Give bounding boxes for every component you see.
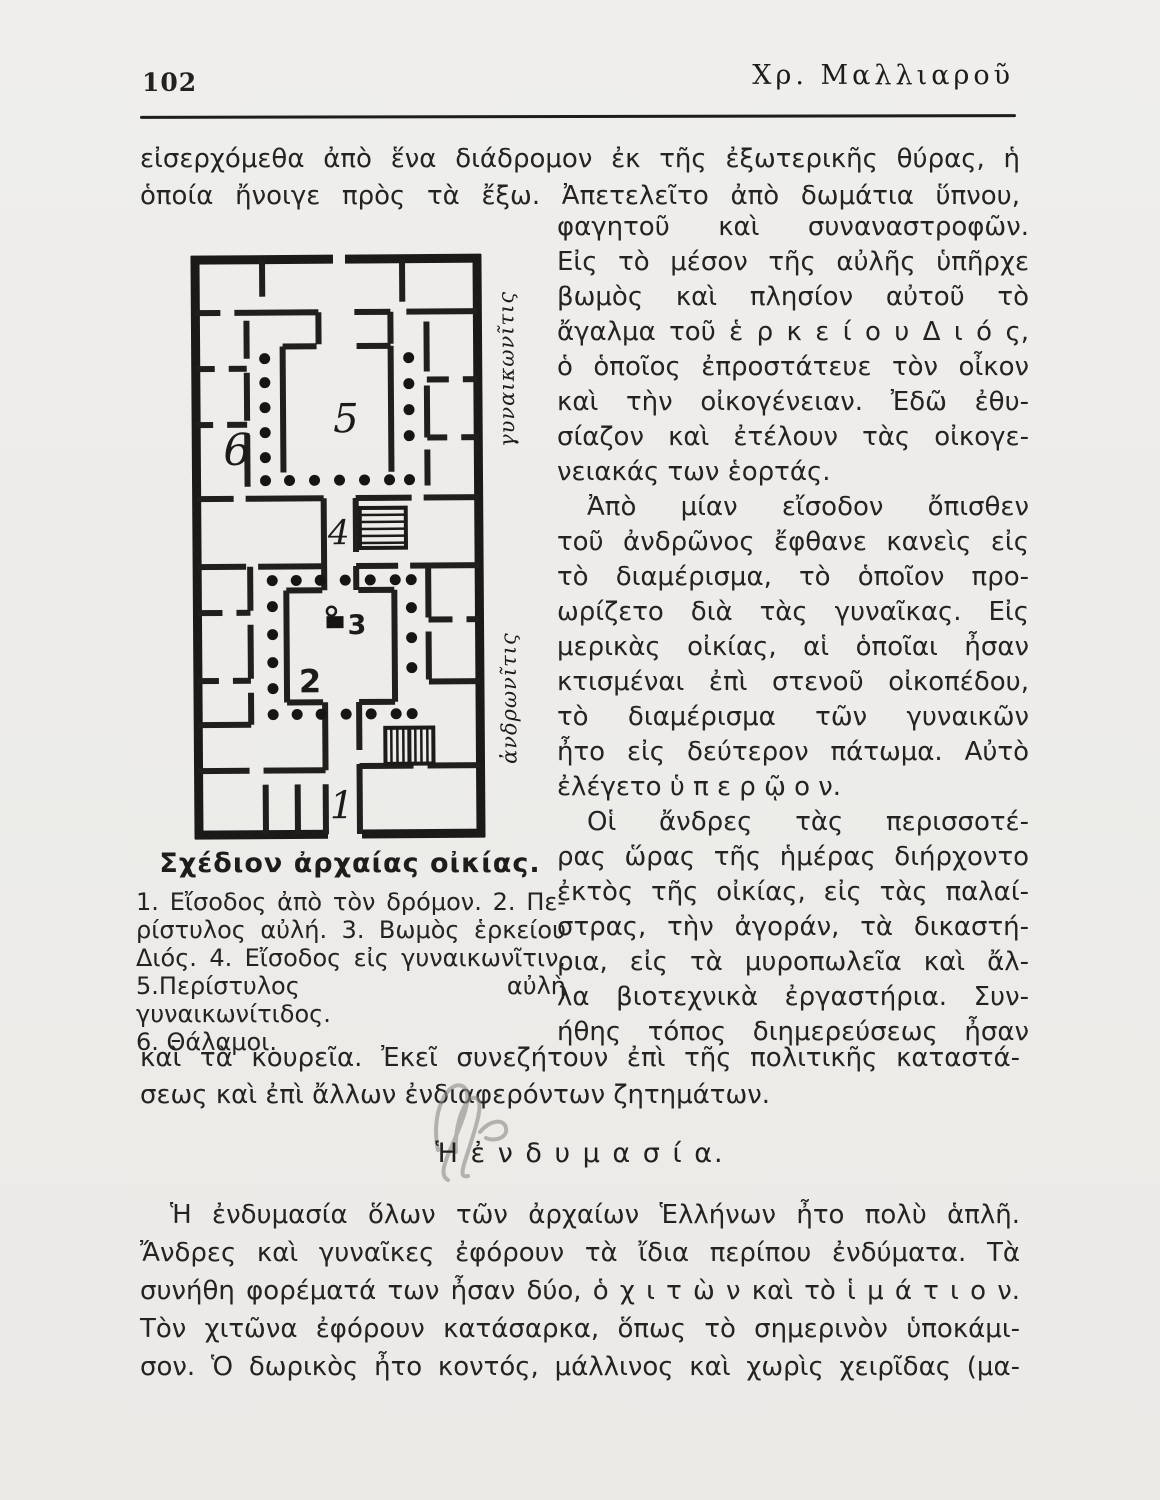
text-line: τὸ διαμέρισμα τῶν γυναικῶν	[557, 700, 1029, 735]
text-line: ρια, εἰς τὰ μυροπωλεῖα καὶ ἄλ-	[557, 945, 1029, 980]
text-line: φαγητοῦ καὶ συναναστροφῶν.	[557, 210, 1029, 245]
text-line: Τὸν χιτῶνα ἐφόρουν κατάσαρκα, ὅπως τὸ ση…	[140, 1310, 1020, 1348]
text-line: Ἡ ἐνδυμασία ὅλων τῶν ἀρχαίων Ἑλλήνων ἦτο…	[140, 1196, 1020, 1234]
figure-legend: 1. Εἴσοδος ἀπὸ τὸν δρόμον. 2. Πε-ρίστυλο…	[136, 888, 566, 1056]
text-line: καὶ τὰ κουρεῖα. Ἐκεῖ συνεζήτουν ἐπὶ τῆς …	[140, 1040, 1020, 1077]
text-line: Ἀπὸ μίαν εἴσοδον ὄπισθεν	[557, 490, 1029, 525]
text-line: ἦτο εἰς δεύτερον πάτωμα. Αὐτὸ	[557, 735, 1029, 770]
text-line: τοῦ ἀνδρῶνος ἔφθανε κανεὶς εἰς	[557, 525, 1029, 560]
header-rule	[140, 114, 1016, 119]
text-line: τὸ διαμέρισμα, τὸ ὁποῖον προ-	[557, 560, 1029, 595]
text-line: Οἱ ἄνδρες τὰς περισσοτέ-	[557, 805, 1029, 840]
text-line: λα βιοτεχνικὰ ἐργαστήρια. Συν-	[557, 980, 1029, 1015]
text-line: Ἄνδρες καὶ γυναῖκες ἐφόρουν τὰ ἴδια περί…	[140, 1234, 1020, 1272]
text-line: στρας, τὴν ἀγοράν, τὰ δικαστή-	[557, 910, 1029, 945]
clothing-paragraph: Ἡ ἐνδυμασία ὅλων τῶν ἀρχαίων Ἑλλήνων ἦτο…	[140, 1196, 1020, 1386]
intro-paragraph: εἰσερχόμεθα ἀπὸ ἕνα διάδρομον ἐκ τῆς ἐξω…	[140, 141, 1020, 215]
figure-caption: Σχέδιον ἀρχαίας οἰκίας.	[140, 848, 560, 879]
text-line: καὶ τὴν οἰκογένειαν. Ἐδῶ ἐθυ-	[557, 385, 1029, 420]
andronitis-label: ἀνδρωνῖτις	[497, 632, 522, 764]
text-line: ἐκτὸς τῆς οἰκίας, εἰς τὰς παλαί-	[557, 875, 1029, 910]
text-line: νειακάς των ἑορτάς.	[557, 455, 1029, 490]
section-heading: Ἡ ἐ ν δ υ μ α σ ί α.	[140, 1138, 1020, 1169]
text-line: Διός. 4. Εἴσοδος εἰς γυναικωνῖτιν.	[136, 944, 566, 972]
outer-wall-right	[477, 254, 481, 837]
altar-icon	[326, 607, 343, 629]
text-line: βωμὸς καὶ πλησίον αὐτοῦ τὸ	[557, 280, 1029, 315]
after-figure-paragraph: καὶ τὰ κουρεῖα. Ἐκεῖ συνεζήτουν ἐπὶ τῆς …	[140, 1040, 1020, 1114]
text-line: ὁ ὁποῖος ἐπροστάτευε τὸν οἶκον	[557, 350, 1029, 385]
room-number-4: 4	[327, 513, 350, 553]
text-line: ωρίζετο διὰ τὰς γυναῖκας. Εἰς	[557, 595, 1029, 630]
column-paragraph-mens-day: Οἱ ἄνδρες τὰς περισσοτέ-ρας ὥρας τῆς ἡμέ…	[557, 805, 1029, 1050]
scanned-book-page: 102 Χρ. Μαλλιαροῦ εἰσερχόμεθα ἀπὸ ἕνα δι…	[0, 0, 1160, 1500]
text-line: σον. Ὁ δωρικὸς ἦτο κοντός, μάλλινος καὶ …	[140, 1348, 1020, 1386]
text-line: ρίστυλος αὐλή. 3. Βωμὸς ἑρκείου	[136, 916, 566, 944]
floor-plan-drawing: 5 6 4 2 3 1 γυναικωνῖτις ἀνδρωνῖτις	[186, 249, 535, 846]
room-number-6: 6	[223, 425, 251, 476]
text-line: ρας ὥρας τῆς ἡμέρας διήρχοντο	[557, 840, 1029, 875]
room-number-1: 1	[330, 783, 354, 827]
pencil-scribble	[410, 1072, 560, 1187]
text-line: εἰσερχόμεθα ἀπὸ ἕνα διάδρομον ἐκ τῆς ἐξω…	[140, 141, 1020, 178]
outer-wall-left	[195, 256, 199, 839]
page-number: 102	[142, 68, 197, 97]
house-floor-plan-figure: 5 6 4 2 3 1 γυναικωνῖτις ἀνδρωνῖτις	[186, 249, 535, 846]
text-line: 1. Εἴσοδος ἀπὸ τὸν δρόμον. 2. Πε-	[136, 888, 566, 916]
text-line: σεως καὶ ἐπὶ ἄλλων ἐνδιαφερόντων ζητημάτ…	[140, 1077, 1020, 1114]
stairs-upper-icon	[360, 508, 406, 548]
outer-wall-top	[191, 258, 481, 260]
room-number-5: 5	[333, 396, 359, 442]
text-line: Εἰς τὸ μέσον τῆς αὐλῆς ὑπῆρχε	[557, 245, 1029, 280]
text-line: κτισμέναι ἐπὶ στενοῦ οἰκοπέδου,	[557, 665, 1029, 700]
text-line: ἐλέγετο ὑ π ε ρ ῷ ο ν.	[557, 770, 1029, 805]
text-line: σίαζον καὶ ἐτέλουν τὰς οἰκογε-	[557, 420, 1029, 455]
column-paragraph-altar: Εἰς τὸ μέσον τῆς αὐλῆς ὑπῆρχεβωμὸς καὶ π…	[557, 245, 1029, 490]
stairs-lower-icon	[385, 727, 433, 763]
room-number-2: 2	[299, 662, 322, 700]
column-paragraph-womens-quarters: Ἀπὸ μίαν εἴσοδον ὄπισθεντοῦ ἀνδρῶνος ἔφθ…	[557, 490, 1029, 805]
text-line: συνήθη φορέματά των ἦσαν δύο, ὁ χ ι τ ὼ …	[140, 1272, 1020, 1310]
text-line: μερικὰς οἰκίας, αἱ ὁποῖαι ἦσαν	[557, 630, 1029, 665]
text-line: 5.Περίστυλος αὐλὴ γυναικωνίτιδος.	[136, 972, 566, 1028]
text-line: ἄγαλμα τοῦ ἑ ρ κ ε ί ο υ Δ ι ό ς,	[557, 315, 1029, 350]
room-number-3: 3	[347, 610, 366, 641]
gynaikonitis-label: γυναικωνῖτις	[494, 291, 519, 447]
running-header: Χρ. Μαλλιαροῦ	[752, 60, 1014, 91]
outer-wall-bottom	[195, 833, 485, 835]
column-paragraph-end: φαγητοῦ καὶ συναναστροφῶν.	[557, 210, 1029, 245]
